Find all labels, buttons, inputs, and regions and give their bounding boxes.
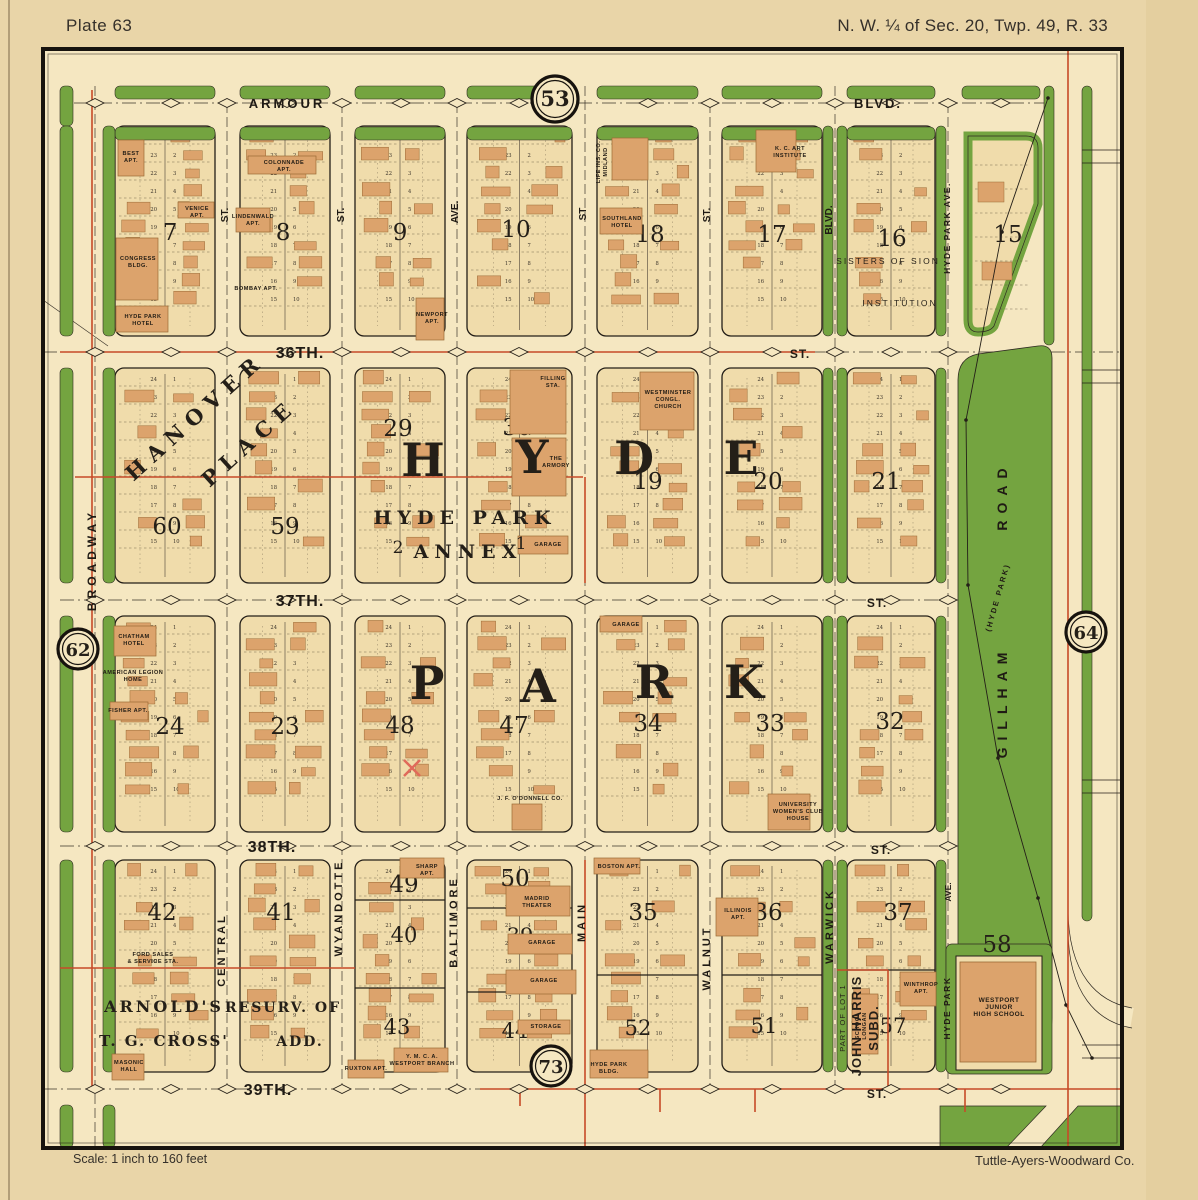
lot-number: 2 (899, 643, 902, 649)
building-footprint (293, 622, 316, 632)
building-footprint (655, 204, 678, 214)
lot-number: 1 (528, 625, 531, 631)
plat-map-page: Plate 63 N. W. ¼ of Sec. 20, Twp. 49, R.… (0, 0, 1198, 1200)
block-number-16: 16 (877, 226, 906, 252)
lot-number: 10 (656, 539, 663, 545)
building-footprint (363, 462, 379, 474)
parkway-green-25 (103, 1105, 115, 1148)
lot-number: 2 (293, 395, 296, 401)
lot-number: 8 (656, 995, 659, 1001)
poi-label: LIFE INS. CO. (596, 141, 602, 184)
poi-building-18 (512, 804, 542, 830)
parkway-green-4 (597, 86, 698, 99)
street-label-st-: ST. (702, 208, 713, 223)
building-footprint (294, 242, 316, 250)
building-footprint (750, 745, 764, 758)
lot-number: 9 (173, 769, 176, 775)
building-footprint (249, 673, 277, 686)
building-footprint (782, 766, 793, 776)
lot-number: 7 (528, 243, 531, 249)
parkway-green-15 (60, 86, 73, 126)
parkway-green-21 (103, 126, 115, 336)
building-footprint (740, 637, 763, 650)
lot-number: 10 (656, 1031, 663, 1037)
lot-number: 8 (173, 751, 176, 757)
building-footprint (664, 537, 684, 546)
building-footprint (184, 151, 203, 160)
building-footprint (249, 392, 275, 402)
lot-number: 20 (633, 941, 640, 947)
poi-label: CONGRESS (120, 256, 156, 262)
building-footprint (908, 956, 921, 966)
lot-number: 9 (899, 521, 902, 527)
building-footprint (363, 370, 383, 384)
building-footprint (793, 224, 814, 232)
lot-number: 21 (150, 679, 157, 685)
building-footprint (370, 747, 387, 758)
building-footprint (669, 483, 687, 492)
lot-number: 9 (780, 1013, 783, 1019)
lot-number: 20 (385, 697, 392, 703)
lot-number: 23 (385, 643, 392, 649)
lot-number: 23 (757, 395, 764, 401)
building-footprint (664, 620, 686, 632)
lot-number: 9 (656, 279, 659, 285)
poi-label: HOTEL (611, 223, 633, 229)
publisher-name: Tuttle-Ayers-Woodward Co. (975, 1153, 1134, 1168)
street-label-st-: ST. (871, 843, 891, 857)
poi-label: J. F. O'DONNELL CO. (497, 796, 563, 802)
street-label-ave-: AVE. (943, 882, 953, 901)
block-number-47: 47 (499, 713, 528, 739)
street-label-38th-: 38TH. (248, 839, 297, 856)
district-letter-A: A (519, 659, 557, 713)
building-footprint (616, 744, 641, 758)
lot-number: 10 (780, 539, 787, 545)
area-label-5: 1 (516, 534, 527, 554)
parkway-green-32 (837, 616, 847, 832)
street-label-st-: ST. (220, 208, 231, 223)
building-footprint (125, 390, 154, 402)
building-footprint (413, 258, 431, 268)
poi-label: SHARP (416, 864, 438, 870)
building-footprint (127, 202, 150, 214)
poi-label: RUXTON APT. (345, 1066, 387, 1072)
lot-number: 8 (173, 503, 176, 509)
building-footprint (248, 898, 265, 912)
building-footprint (908, 500, 924, 510)
building-footprint (728, 201, 745, 214)
building-footprint (475, 866, 500, 876)
street-label-blvd-: BLVD. (824, 205, 835, 234)
lot-number: 20 (385, 449, 392, 455)
lot-number: 19 (385, 467, 392, 473)
building-footprint (778, 205, 790, 214)
building-footprint (779, 497, 802, 510)
lot-number: 20 (150, 941, 157, 947)
building-footprint (982, 262, 1012, 280)
building-footprint (479, 148, 506, 160)
lot-number: 9 (899, 279, 902, 285)
lot-number: 23 (150, 153, 157, 159)
building-footprint (901, 536, 917, 546)
lot-number: 17 (505, 751, 512, 757)
building-footprint (915, 188, 927, 196)
lot-number: 19 (150, 225, 157, 231)
lot-number: 24 (633, 377, 640, 383)
building-footprint (250, 956, 276, 966)
building-footprint (409, 994, 433, 1002)
poi-label: BLDG. (128, 263, 148, 269)
parkway-green-7 (962, 86, 1040, 99)
lot-number: 1 (408, 377, 411, 383)
poi-label: APT. (420, 871, 434, 877)
building-footprint (854, 481, 869, 492)
street-label-st: ST (578, 208, 589, 221)
building-footprint (486, 166, 499, 178)
lot-number: 6 (899, 959, 902, 965)
district-letter-H: H (401, 433, 444, 487)
building-footprint (260, 659, 273, 668)
block-number-40: 40 (391, 923, 418, 947)
building-footprint (605, 954, 634, 966)
lot-number: 16 (757, 769, 764, 775)
lot-number: 6 (780, 959, 783, 965)
lot-number: 3 (408, 905, 411, 911)
poi-label: COLONNADE (264, 160, 305, 166)
lot-number: 8 (408, 261, 411, 267)
street-label-36th-: 36TH. (276, 345, 325, 362)
lot-number: 23 (633, 887, 640, 893)
poi-label: GARAGE (534, 542, 562, 548)
building-footprint (978, 182, 1004, 202)
building-footprint (364, 1025, 381, 1038)
building-footprint (290, 186, 306, 196)
building-footprint (173, 394, 193, 402)
building-footprint (489, 765, 512, 776)
lot-number: 20 (876, 697, 883, 703)
building-footprint (860, 747, 875, 758)
building-footprint (256, 863, 276, 876)
block-number-34: 34 (633, 711, 662, 737)
block-number-9: 9 (393, 220, 408, 246)
lot-number: 1 (293, 869, 296, 875)
lot-number: 5 (293, 697, 296, 703)
area-label-6: ARNOLD'S (103, 997, 224, 1016)
parkway-green-23 (103, 616, 115, 832)
building-footprint (247, 257, 272, 268)
poi-label: HALL (121, 1067, 138, 1073)
building-footprint (371, 480, 384, 492)
building-footprint (861, 766, 883, 776)
lot-number: 3 (780, 661, 783, 667)
building-footprint (182, 273, 200, 286)
building-footprint (905, 729, 923, 740)
lot-number: 7 (173, 485, 176, 491)
lot-number: 7 (408, 243, 411, 249)
lot-number: 3 (780, 413, 783, 419)
district-letter-P: P (410, 656, 445, 710)
lot-number: 24 (505, 625, 512, 631)
building-footprint (297, 277, 322, 286)
building-footprint (493, 658, 510, 668)
building-footprint (654, 149, 674, 160)
lot-number: 7 (293, 485, 296, 491)
lot-number: 8 (899, 503, 902, 509)
poi-label: APT. (425, 319, 439, 325)
poi-label: GARAGE (612, 622, 640, 628)
poi-label: WINTHROP (904, 982, 938, 988)
lot-number: 18 (270, 977, 277, 983)
building-footprint (783, 481, 801, 492)
building-footprint (375, 954, 389, 966)
block-number-24: 24 (155, 714, 184, 740)
building-footprint (126, 730, 149, 740)
lot-number: 21 (876, 923, 883, 929)
building-footprint (793, 729, 808, 740)
parkway-green-10 (355, 127, 445, 140)
building-footprint (289, 782, 300, 794)
building-footprint (535, 954, 558, 966)
building-footprint (860, 148, 882, 160)
block-number-7: 7 (163, 220, 178, 246)
building-footprint (786, 239, 802, 250)
building-footprint (299, 866, 313, 876)
lot-number: 10 (408, 297, 415, 303)
poi-label: HYDE PARK (590, 1062, 627, 1068)
building-footprint (380, 201, 392, 214)
poi-label: LINDENWALD (232, 214, 274, 220)
building-footprint (251, 1025, 269, 1038)
lot-number: 15 (757, 297, 764, 303)
lot-number: 16 (633, 769, 640, 775)
poi-label: SOUTHLAND (602, 216, 642, 222)
lot-number: 9 (293, 769, 296, 775)
block-number-23: 23 (270, 714, 299, 740)
block-number-15: 15 (993, 222, 1022, 248)
lot-number: 21 (633, 189, 640, 195)
building-footprint (854, 219, 873, 232)
poi-label: HIGH SCHOOL (973, 1011, 1024, 1018)
building-footprint (534, 921, 556, 930)
building-footprint (125, 762, 151, 776)
lot-number: 24 (876, 625, 883, 631)
building-footprint (174, 291, 196, 304)
area-label-8: RESURV. OF (225, 1000, 341, 1016)
building-footprint (866, 956, 883, 966)
building-footprint (546, 166, 562, 178)
lot-number: 20 (270, 207, 277, 213)
building-footprint (301, 768, 315, 776)
lot-number: 3 (173, 661, 176, 667)
building-footprint (414, 204, 432, 214)
lot-number: 9 (656, 1013, 659, 1019)
building-footprint (612, 392, 639, 402)
poi-label: MASONIC (114, 1060, 144, 1066)
lot-number: 18 (385, 243, 392, 249)
lot-number: 17 (633, 995, 640, 1001)
lot-number: 5 (293, 207, 296, 213)
building-footprint (897, 864, 908, 876)
lot-number: 24 (757, 625, 764, 631)
park-trail-node (964, 418, 968, 422)
poi-label: AMERICAN LEGION (103, 670, 164, 676)
building-footprint (615, 273, 631, 286)
street-label-gillham: GILLHAM (994, 646, 1010, 759)
building-footprint (797, 1007, 808, 1020)
poi-label: GARAGE (530, 978, 558, 984)
lot-number: 10 (293, 297, 300, 303)
scale-note: Scale: 1 inch to 160 feet (73, 1152, 207, 1166)
lot-number: 1 (780, 625, 783, 631)
lot-number: 2 (656, 887, 659, 893)
lot-number: 7 (656, 977, 659, 983)
building-footprint (477, 276, 500, 286)
lot-number: 2 (780, 643, 783, 649)
lot-number: 1 (656, 625, 659, 631)
building-footprint (474, 673, 493, 686)
building-footprint (911, 222, 926, 232)
building-footprint (478, 637, 506, 650)
block-number-35: 35 (628, 900, 657, 926)
building-footprint (369, 903, 393, 912)
area-label-3: 2 (393, 538, 404, 558)
parkway-green-30 (837, 126, 847, 336)
lot-number: 9 (293, 279, 296, 285)
lot-number: 18 (150, 485, 157, 491)
building-footprint (183, 499, 202, 510)
building-footprint (736, 186, 764, 196)
building-footprint (124, 920, 149, 930)
poi-label: UNIVERSITY (779, 802, 818, 808)
lot-number: 22 (505, 171, 512, 177)
lot-number: 20 (505, 207, 512, 213)
street-label-st-: ST. (790, 347, 810, 361)
lot-number: 2 (173, 153, 176, 159)
building-footprint (731, 866, 760, 876)
lot-number: 19 (505, 959, 512, 965)
lot-number: 15 (150, 787, 157, 793)
block-number-51: 51 (751, 1014, 778, 1038)
building-footprint (406, 749, 428, 758)
building-footprint (290, 957, 316, 966)
building-footprint (743, 257, 760, 268)
lot-number: 8 (780, 261, 783, 267)
lot-number: 8 (656, 751, 659, 757)
building-footprint (917, 411, 929, 420)
poi-building-2 (116, 238, 158, 300)
lot-number: 8 (173, 261, 176, 267)
building-footprint (480, 390, 507, 402)
building-footprint (478, 443, 496, 456)
building-footprint (605, 187, 628, 196)
area-label-13: SISTERS OF SION (836, 256, 940, 266)
area-label-11: JOHN HARRIS (849, 976, 864, 1077)
building-footprint (299, 201, 314, 214)
lot-number: 2 (173, 887, 176, 893)
building-footprint (797, 170, 813, 178)
lot-number: 1 (173, 869, 176, 875)
poi-label: APT. (190, 213, 204, 219)
street-label-ave-: AVE. (450, 200, 461, 223)
lot-number: 16 (270, 279, 277, 285)
building-footprint (853, 373, 880, 384)
building-footprint (190, 536, 202, 546)
lot-number: 1 (293, 377, 296, 383)
building-footprint (612, 295, 641, 304)
building-footprint (733, 408, 761, 420)
parkway-green-0 (115, 86, 215, 99)
parkway-green-39 (1082, 86, 1092, 921)
lot-number: 10 (780, 1031, 787, 1037)
block-number-52: 52 (625, 1016, 652, 1040)
poi-label: APT. (914, 989, 928, 995)
building-footprint (858, 637, 883, 650)
building-footprint (677, 165, 689, 178)
building-footprint (668, 639, 684, 650)
lot-number: 10 (408, 787, 415, 793)
poi-label: APT. (124, 158, 138, 164)
district-letter-K: K (724, 655, 766, 709)
building-footprint (255, 461, 271, 474)
lot-number: 9 (173, 279, 176, 285)
district-letter-E: E (723, 431, 758, 485)
building-footprint (248, 782, 276, 794)
block-number-8: 8 (276, 220, 291, 246)
parkway-green-19 (60, 860, 73, 1072)
parkway-green-8 (115, 127, 215, 140)
poi-label: WESTPORT (979, 997, 1020, 1004)
poi-label: INSTITUTE (773, 153, 806, 159)
building-footprint (654, 518, 678, 528)
building-footprint (254, 884, 275, 894)
poi-label: CONGL. (656, 397, 681, 403)
area-label-2: HYDE PARK (373, 507, 556, 529)
lot-number: 24 (270, 625, 277, 631)
block-number-48: 48 (385, 713, 414, 739)
lot-number: 19 (505, 467, 512, 473)
building-footprint (422, 973, 436, 984)
building-footprint (730, 147, 743, 160)
building-footprint (481, 187, 510, 196)
building-footprint (303, 537, 324, 546)
street-label-hyde-park: HYDE PARK (942, 977, 952, 1040)
parkway-green-16 (60, 126, 73, 336)
block-number-59: 59 (270, 514, 299, 540)
building-footprint (479, 989, 496, 1002)
building-footprint (481, 921, 497, 930)
area-label-4: ANNEX (413, 541, 523, 563)
building-footprint (125, 785, 149, 794)
poi-label: STA. (546, 383, 560, 389)
parkway-green-14 (847, 127, 935, 140)
lot-number: 24 (150, 869, 157, 875)
lot-number: 10 (899, 787, 906, 793)
lot-number: 20 (757, 941, 764, 947)
lot-number: 23 (150, 887, 157, 893)
building-footprint (620, 255, 636, 268)
lot-number: 2 (780, 887, 783, 893)
building-footprint (488, 481, 507, 492)
lot-number: 5 (899, 207, 902, 213)
building-footprint (901, 376, 916, 384)
building-footprint (744, 988, 761, 1002)
lot-number: 3 (899, 171, 902, 177)
building-footprint (379, 273, 393, 286)
lot-number: 5 (899, 941, 902, 947)
parkway-green-9 (240, 127, 330, 140)
lot-number: 2 (656, 643, 659, 649)
